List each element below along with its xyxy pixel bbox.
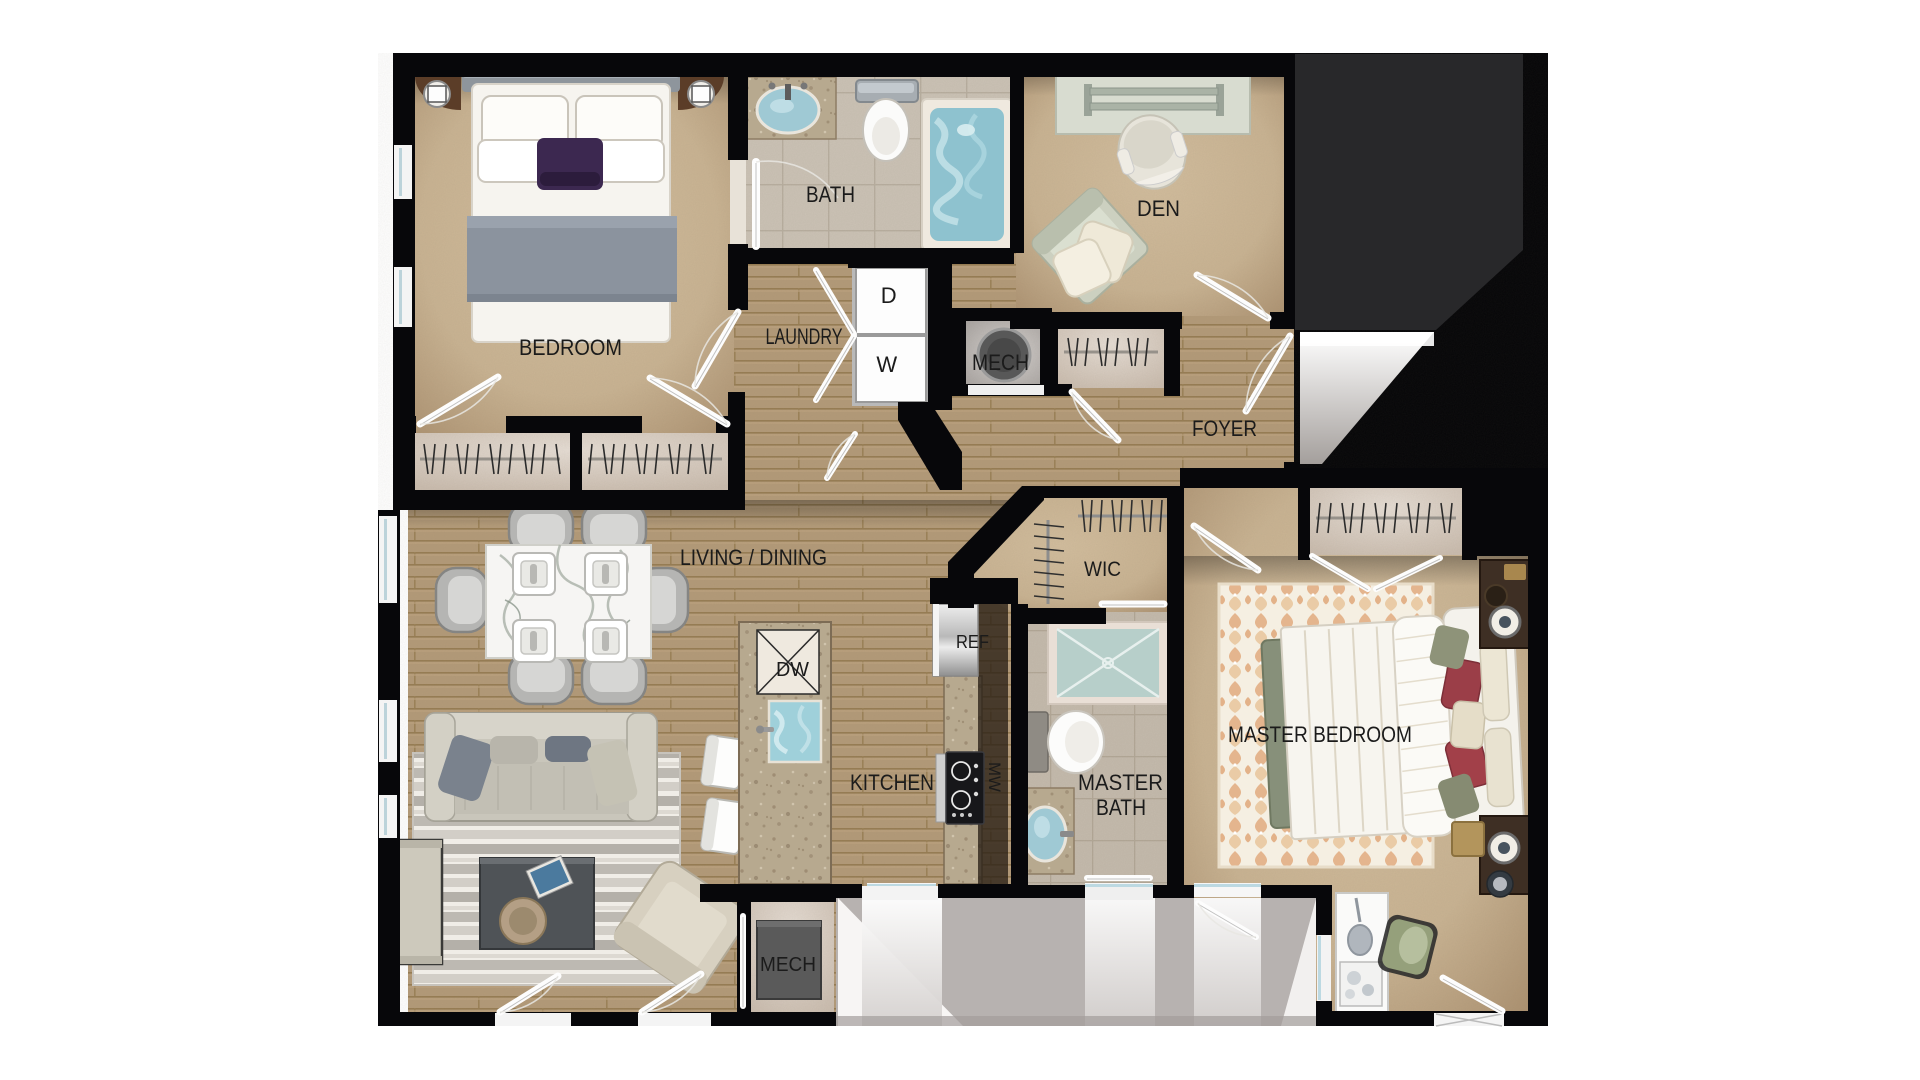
svg-text:FOYER: FOYER — [1192, 416, 1257, 441]
svg-text:BEDROOM: BEDROOM — [519, 335, 622, 360]
svg-text:BATH: BATH — [806, 182, 855, 207]
svg-text:WIC: WIC — [1084, 558, 1121, 581]
svg-text:LIVING / DINING: LIVING / DINING — [680, 545, 827, 570]
svg-text:DW: DW — [776, 659, 809, 681]
svg-text:MW: MW — [985, 762, 1004, 792]
svg-text:LAUNDRY: LAUNDRY — [766, 324, 843, 349]
svg-text:MECH: MECH — [972, 350, 1029, 375]
svg-text:MASTER BEDROOM: MASTER BEDROOM — [1228, 722, 1412, 747]
svg-text:W: W — [876, 352, 897, 377]
svg-text:KITCHEN: KITCHEN — [850, 770, 934, 795]
svg-text:DEN: DEN — [1137, 196, 1180, 221]
svg-text:MECH: MECH — [760, 954, 816, 976]
svg-text:BATH: BATH — [1096, 795, 1146, 820]
svg-text:D: D — [881, 283, 897, 308]
svg-text:REF: REF — [956, 632, 989, 652]
svg-text:MASTER: MASTER — [1078, 770, 1163, 795]
